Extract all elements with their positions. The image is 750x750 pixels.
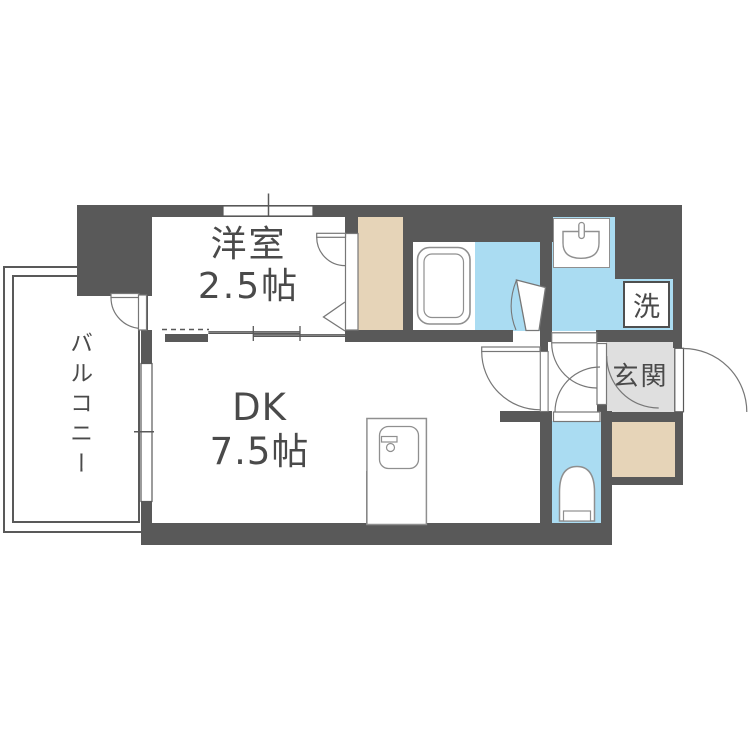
- closet-fill: [358, 217, 403, 331]
- wall-bath-washroom: [540, 242, 552, 331]
- wall-shoe-right: [675, 412, 683, 485]
- wall-room-door-top-stub: [345, 217, 358, 234]
- floorplan: 洋室 2.5帖 DK 7.5帖 バルコニー 玄関 洗: [0, 0, 750, 750]
- western-room-size: 2.5帖: [152, 266, 345, 308]
- bathroom-floor-fill: [475, 242, 540, 331]
- washbasin-counter: [553, 218, 610, 268]
- bathroom-unit-fill: [413, 242, 475, 331]
- wall-bottom: [141, 523, 612, 545]
- wall-washroom-top-right: [615, 217, 682, 279]
- dk-size: 7.5帖: [152, 430, 367, 474]
- entrance-name: 玄関: [612, 362, 668, 393]
- shoe-cabinet-fill: [611, 421, 675, 477]
- dk-label: DK 7.5帖: [152, 386, 367, 473]
- dk-name: DK: [152, 386, 367, 430]
- wall-kitchen-stub: [366, 471, 375, 523]
- laundry-abbr: 洗: [633, 285, 660, 324]
- wall-mid-a: [345, 330, 513, 342]
- toilet-door: [554, 367, 601, 422]
- toilet-floor-fill: [551, 421, 602, 523]
- balcony-name: バルコニー: [64, 331, 91, 481]
- wall-closet-right: [403, 217, 413, 331]
- wall-mid-c: [596, 330, 682, 342]
- wall-partition-half: [165, 334, 208, 342]
- western-room-name: 洋室: [152, 224, 345, 266]
- wall-top: [150, 205, 682, 217]
- wall-toilet-left: [540, 411, 552, 523]
- wall-top-left-block: [77, 205, 152, 296]
- washroom-door: [552, 333, 597, 388]
- wall-entrance-bottom: [608, 412, 683, 422]
- entrance-door: [675, 348, 747, 412]
- wall-shoe-bottom: [611, 477, 683, 485]
- western-room-label: 洋室 2.5帖: [152, 224, 345, 309]
- balcony-label: バルコニー: [57, 327, 99, 485]
- dk-hall-door: [482, 347, 548, 412]
- wall-hall-left-stub: [540, 341, 548, 354]
- entrance-label: 玄関: [606, 342, 675, 412]
- wall-bathroom-top: [403, 217, 553, 242]
- wall-left-upper: [141, 330, 152, 364]
- washing-machine-space: 洗: [623, 281, 670, 328]
- kitchen-sink-unit-icon: [367, 419, 427, 525]
